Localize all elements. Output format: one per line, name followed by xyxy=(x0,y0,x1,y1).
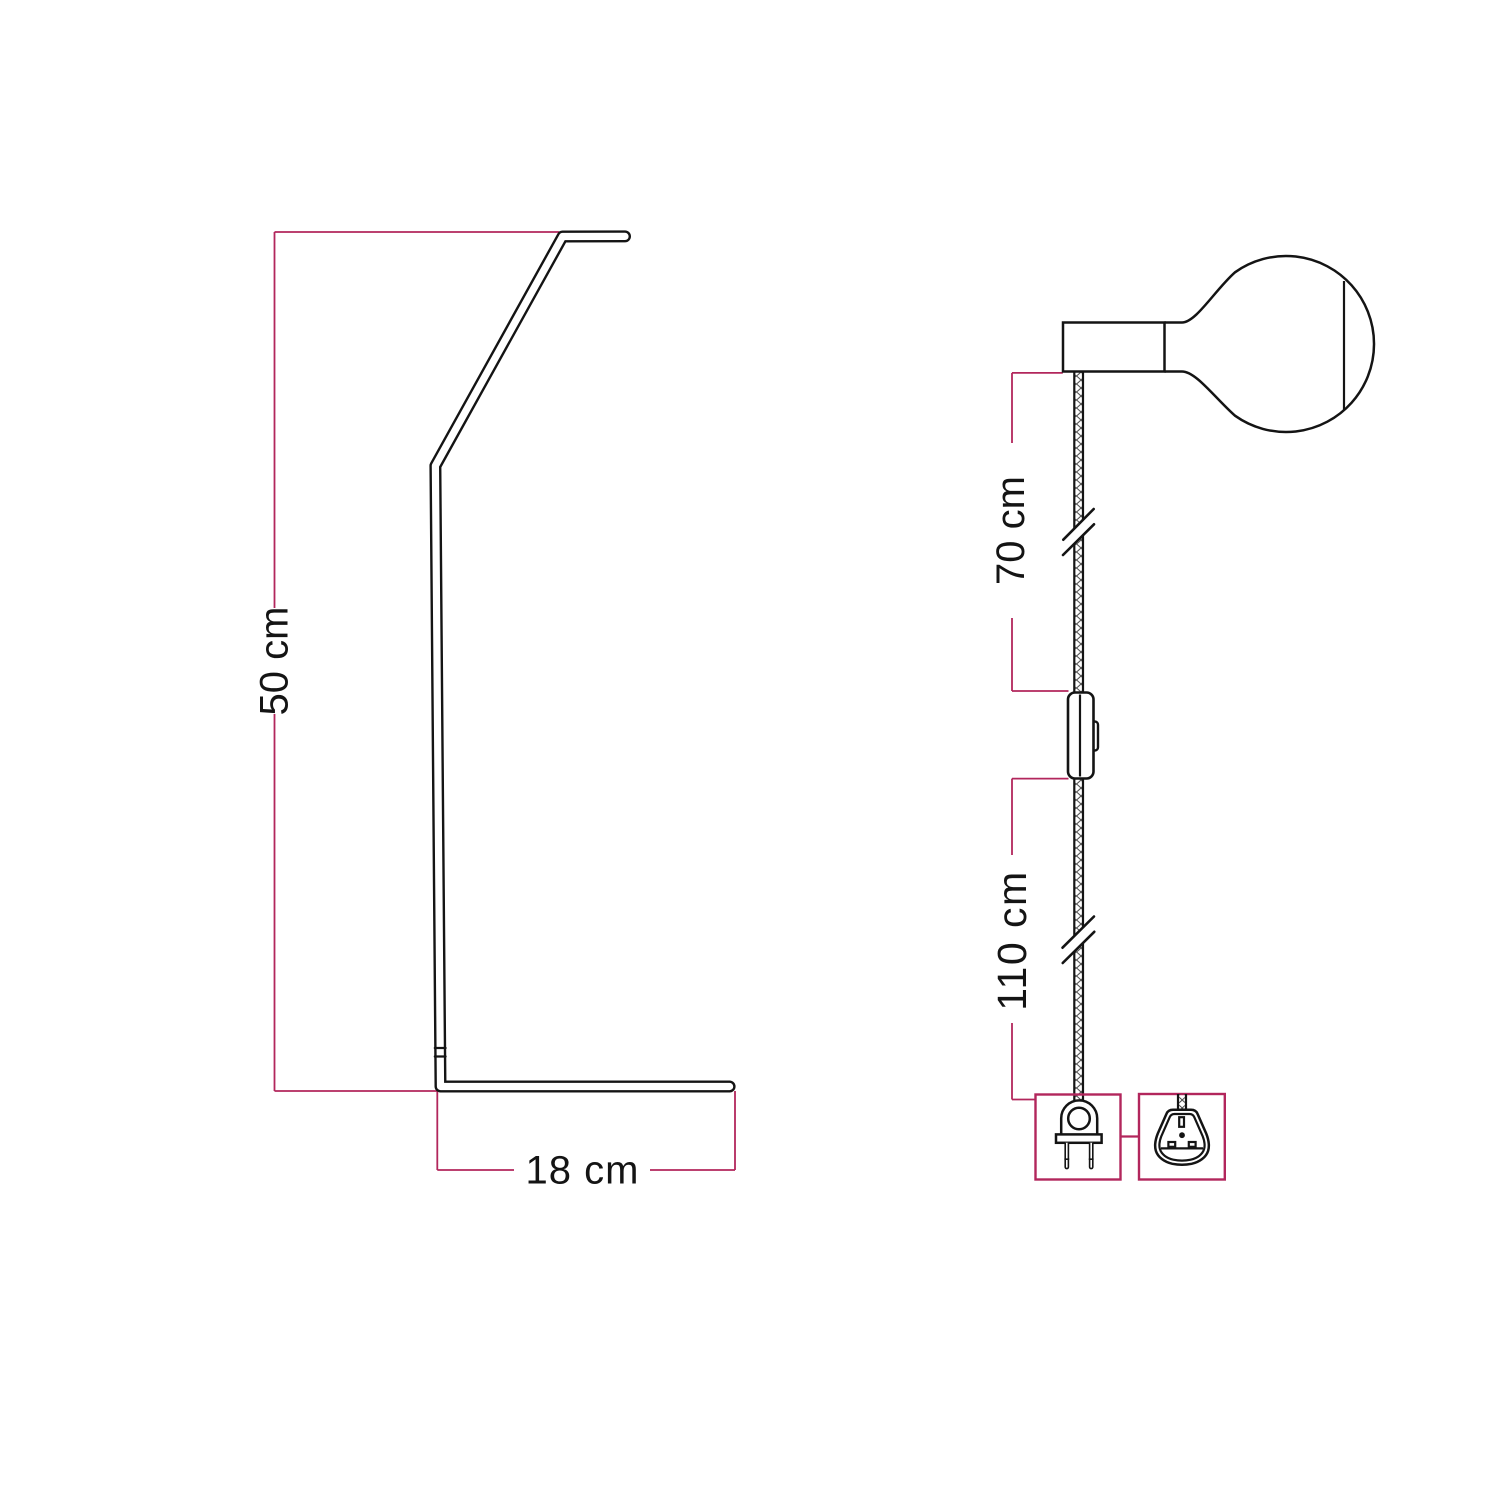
svg-text:110 cm: 110 cm xyxy=(989,870,1035,1010)
svg-text:18 cm: 18 cm xyxy=(526,1149,640,1193)
svg-text:70 cm: 70 cm xyxy=(989,476,1033,585)
svg-text:50 cm: 50 cm xyxy=(253,607,297,716)
